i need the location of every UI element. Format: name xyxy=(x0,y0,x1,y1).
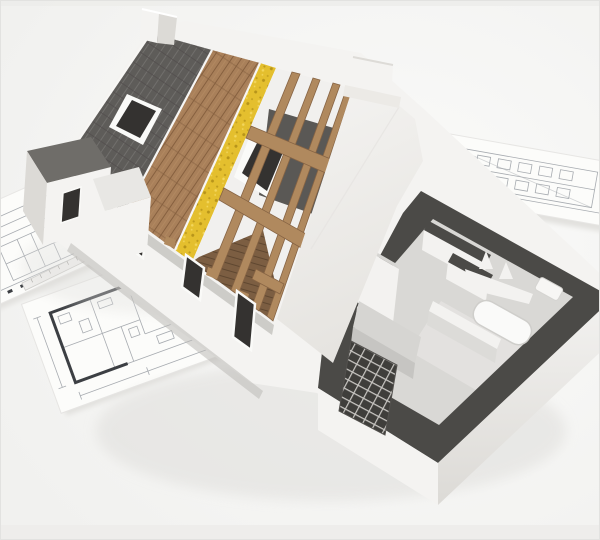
photo-border-bottom xyxy=(1,525,600,540)
rendered-photo xyxy=(0,0,600,540)
porch-window xyxy=(61,187,81,223)
photo-border-top xyxy=(1,1,600,6)
house-cutaway-illustration xyxy=(1,1,600,540)
